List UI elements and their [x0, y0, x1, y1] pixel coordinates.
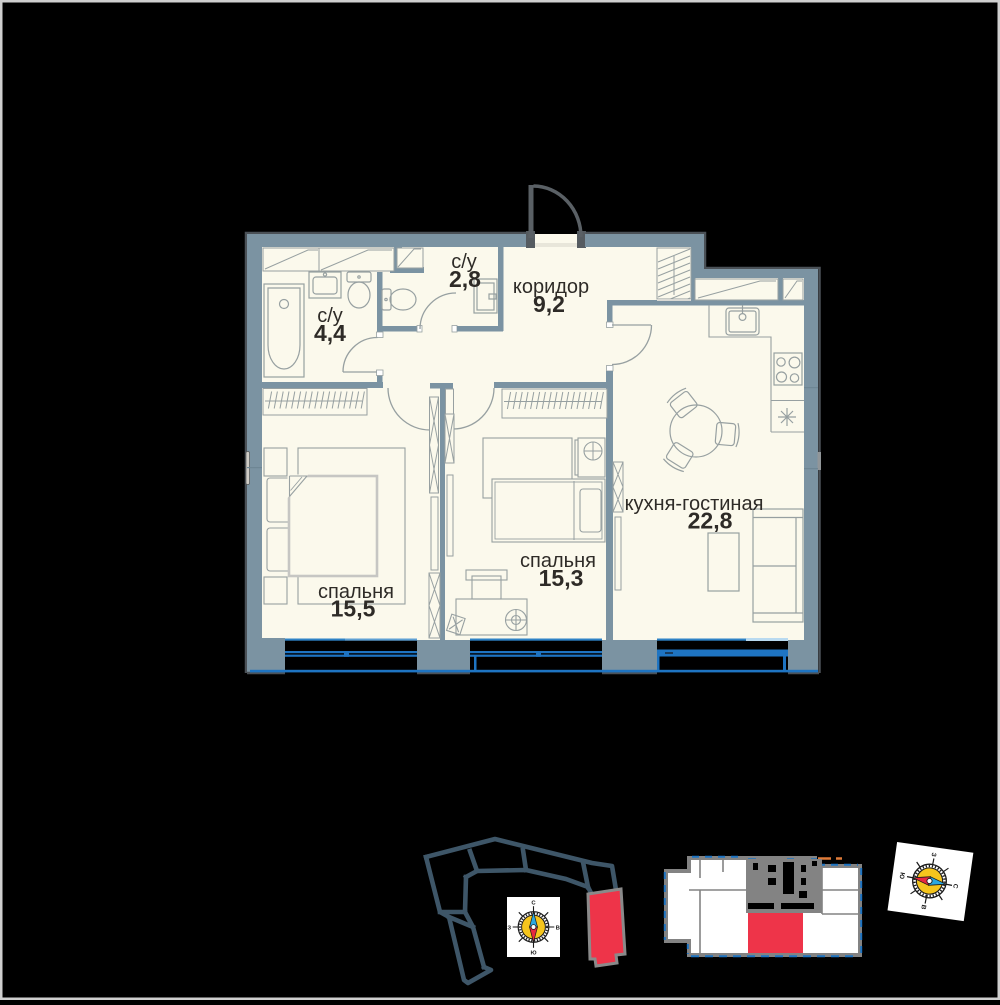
- svg-text:Ю: Ю: [530, 950, 536, 956]
- svg-text:С: С: [531, 901, 536, 907]
- svg-text:З: З: [507, 926, 511, 932]
- svg-text:4,4: 4,4: [314, 320, 346, 346]
- svg-text:2,8: 2,8: [449, 266, 481, 292]
- svg-text:15,5: 15,5: [331, 596, 376, 622]
- svg-text:22,8: 22,8: [688, 508, 733, 534]
- svg-text:В: В: [556, 926, 560, 932]
- svg-text:15,3: 15,3: [539, 565, 584, 591]
- svg-text:9,2: 9,2: [533, 291, 565, 317]
